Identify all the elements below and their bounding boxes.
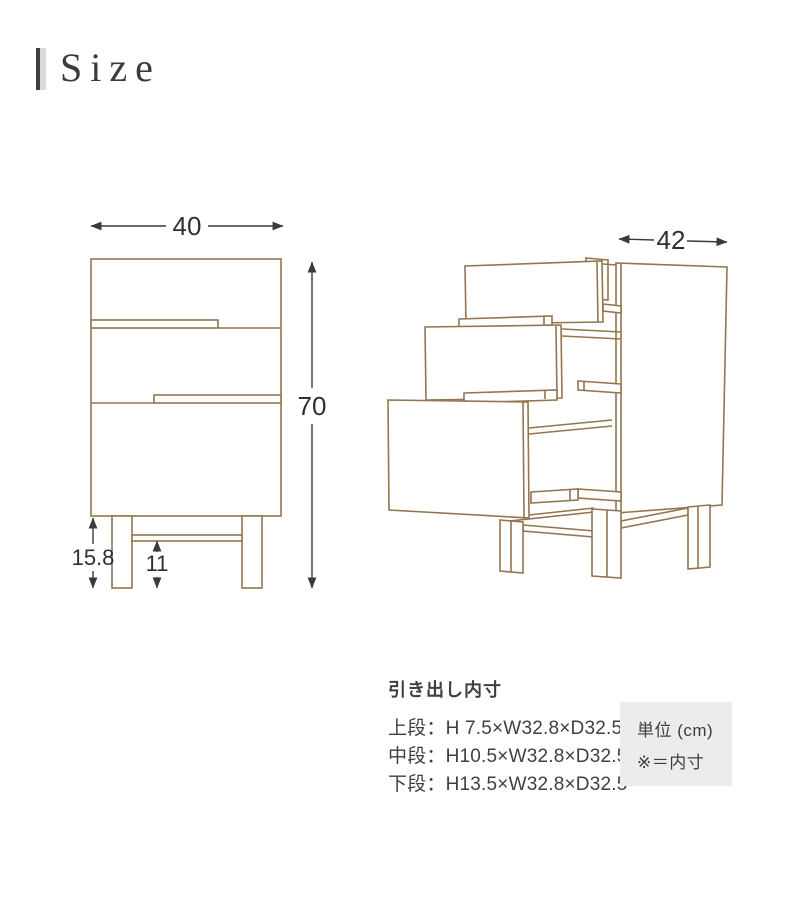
middle-drawer-edge bbox=[556, 326, 557, 398]
top-drawer-edge bbox=[597, 262, 598, 322]
depth-dimension-label: 42 bbox=[657, 225, 686, 255]
leg-stretcher bbox=[132, 535, 242, 541]
perspective-view-drawing bbox=[388, 258, 727, 578]
drawer-specs: 引き出し内寸 上段：H 7.5×W32.8×D32.5 中段：H10.5×W32… bbox=[388, 676, 628, 799]
top-drawer-connector bbox=[603, 264, 616, 265]
left-leg bbox=[112, 516, 132, 588]
rear-right-leg bbox=[688, 505, 710, 569]
page: Size bbox=[0, 0, 800, 900]
drawer-specs-heading: 引き出し内寸 bbox=[388, 676, 628, 702]
bottom-drawer-edge bbox=[523, 402, 524, 517]
height-dimension-label: 70 bbox=[298, 391, 327, 421]
mid-opening-line1 bbox=[562, 329, 621, 332]
bottom-drawer-pull bbox=[531, 489, 578, 503]
mid-opening-line2 bbox=[562, 336, 621, 339]
right-leg bbox=[242, 516, 262, 588]
top-drawer-front bbox=[465, 261, 603, 324]
rail-slat-bottom bbox=[578, 489, 621, 501]
cabinet-body bbox=[91, 259, 281, 516]
width-dimension-label: 40 bbox=[173, 211, 202, 241]
unit-note-box: 単位 (cm) ※＝内寸 bbox=[620, 702, 732, 786]
middle-drawer-front bbox=[425, 325, 562, 400]
cabinet-side-panel bbox=[616, 263, 727, 513]
drawer-spec-row-top: 上段：H 7.5×W32.8×D32.5 bbox=[388, 715, 628, 743]
rail-slat-top bbox=[603, 304, 621, 313]
carcass-bottom-line1 bbox=[529, 508, 594, 515]
unit-note-line1: 単位 (cm) bbox=[637, 716, 732, 741]
depth-arrow-right bbox=[687, 241, 727, 242]
leg-clearance-dimension-label: 11 bbox=[146, 551, 169, 576]
drawer-spec-row-middle: 中段：H10.5×W32.8×D32.5 bbox=[388, 743, 628, 771]
drawer2-pull-strip bbox=[154, 395, 281, 403]
bottom-drawer-front bbox=[388, 400, 529, 518]
unit-note-line2: ※＝内寸 bbox=[637, 748, 732, 773]
size-diagram: 40 70 15.8 11 42 bbox=[0, 0, 800, 640]
front-view-drawing bbox=[91, 259, 281, 588]
drawer-spec-row-bottom: 下段：H13.5×W32.8×D32.5 bbox=[388, 771, 628, 799]
front-stretcher bbox=[523, 525, 594, 537]
depth-arrow-left bbox=[619, 239, 654, 240]
leg-height-dimension-label: 15.8 bbox=[72, 545, 115, 570]
drawer1-pull-strip bbox=[91, 320, 218, 328]
